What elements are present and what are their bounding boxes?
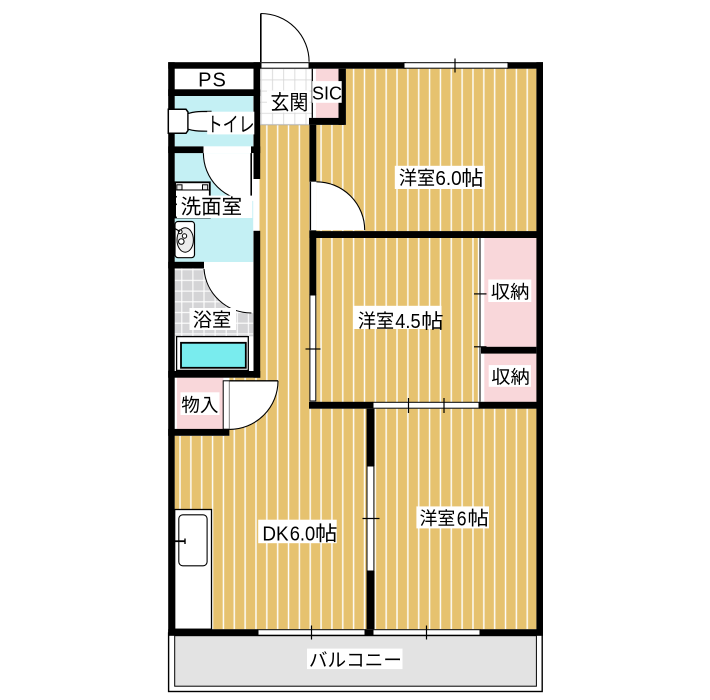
svg-text:4.5: 4.5 xyxy=(395,310,420,333)
svg-text:PS: PS xyxy=(198,70,227,92)
svg-text:6.0: 6.0 xyxy=(435,167,461,190)
svg-text:6: 6 xyxy=(457,508,467,530)
svg-text:DK: DK xyxy=(262,522,288,545)
svg-text:6.0: 6.0 xyxy=(290,523,316,546)
svg-text:SIC: SIC xyxy=(312,84,342,104)
